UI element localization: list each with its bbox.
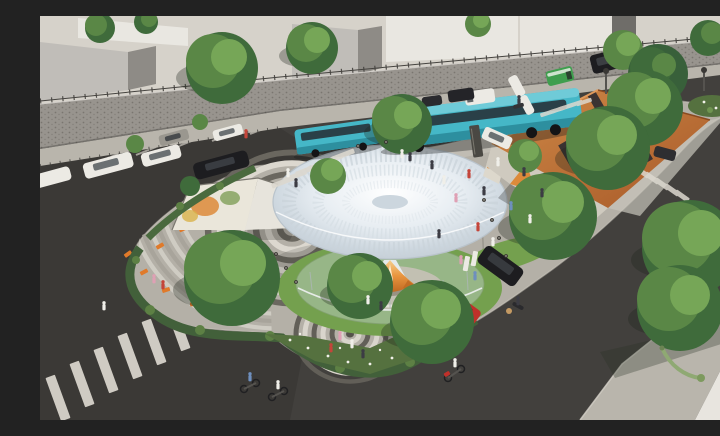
canopy-throat — [372, 195, 408, 209]
dog — [506, 308, 512, 314]
plaza-aerial-render — [40, 16, 720, 420]
